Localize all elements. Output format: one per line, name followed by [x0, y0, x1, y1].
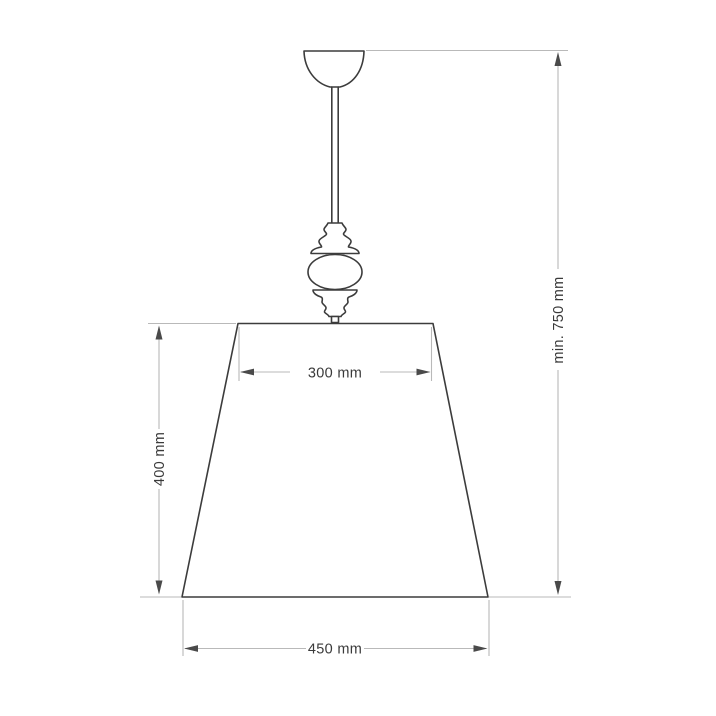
arrowhead-right — [474, 645, 488, 652]
label-shade-bottom-width: 450 mm — [308, 642, 362, 658]
finial-bottom-cap — [313, 290, 357, 317]
finial-sphere — [308, 255, 362, 290]
drawing-canvas: 300 mm 450 mm 400 mm min. 750 mm — [0, 0, 716, 716]
arrowhead-up — [156, 326, 163, 340]
finial-stem — [332, 317, 339, 323]
label-shade-top-width: 300 mm — [308, 366, 362, 382]
label-overall-height: min. 750 mm — [551, 276, 567, 363]
arrowhead-up — [555, 52, 562, 66]
arrowhead-down — [555, 581, 562, 595]
ceiling-canopy — [304, 51, 364, 87]
pendant-lamp-dimension-drawing: 300 mm 450 mm 400 mm min. 750 mm — [0, 0, 716, 716]
finial-top-cap — [311, 223, 359, 254]
label-shade-height: 400 mm — [152, 432, 168, 486]
arrowhead-down — [156, 581, 163, 595]
arrowhead-left — [184, 645, 198, 652]
